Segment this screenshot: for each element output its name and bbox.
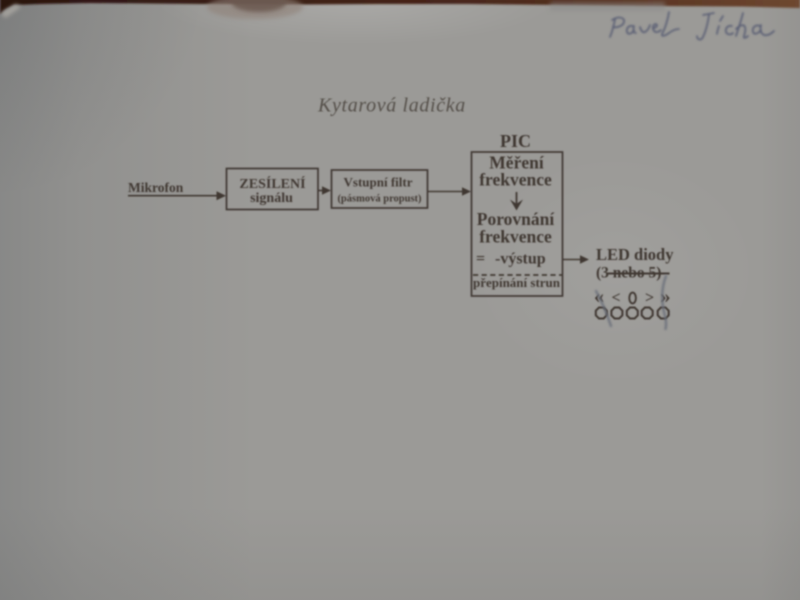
svg-text:přepínání strun: přepínání strun: [473, 275, 561, 290]
svg-text:frekvence: frekvence: [479, 227, 552, 247]
svg-text:ZESÍLENÍ: ZESÍLENÍ: [239, 175, 305, 192]
svg-text:Mikrofon: Mikrofon: [128, 180, 184, 195]
svg-text:-výstup: -výstup: [495, 251, 546, 268]
svg-text:>: >: [645, 290, 654, 307]
svg-text:LED diody: LED diody: [596, 245, 674, 264]
svg-text:<: <: [612, 290, 621, 307]
svg-text:=: =: [476, 251, 485, 268]
svg-text:Kytarová ladička: Kytarová ladička: [317, 95, 466, 117]
svg-text:signálu: signálu: [250, 191, 293, 206]
svg-text:(pásmová propust): (pásmová propust): [337, 194, 422, 205]
svg-text:Vstupní filtr: Vstupní filtr: [344, 175, 413, 190]
svg-text:PIC: PIC: [500, 131, 531, 151]
svg-text:frekvence: frekvence: [479, 170, 552, 190]
